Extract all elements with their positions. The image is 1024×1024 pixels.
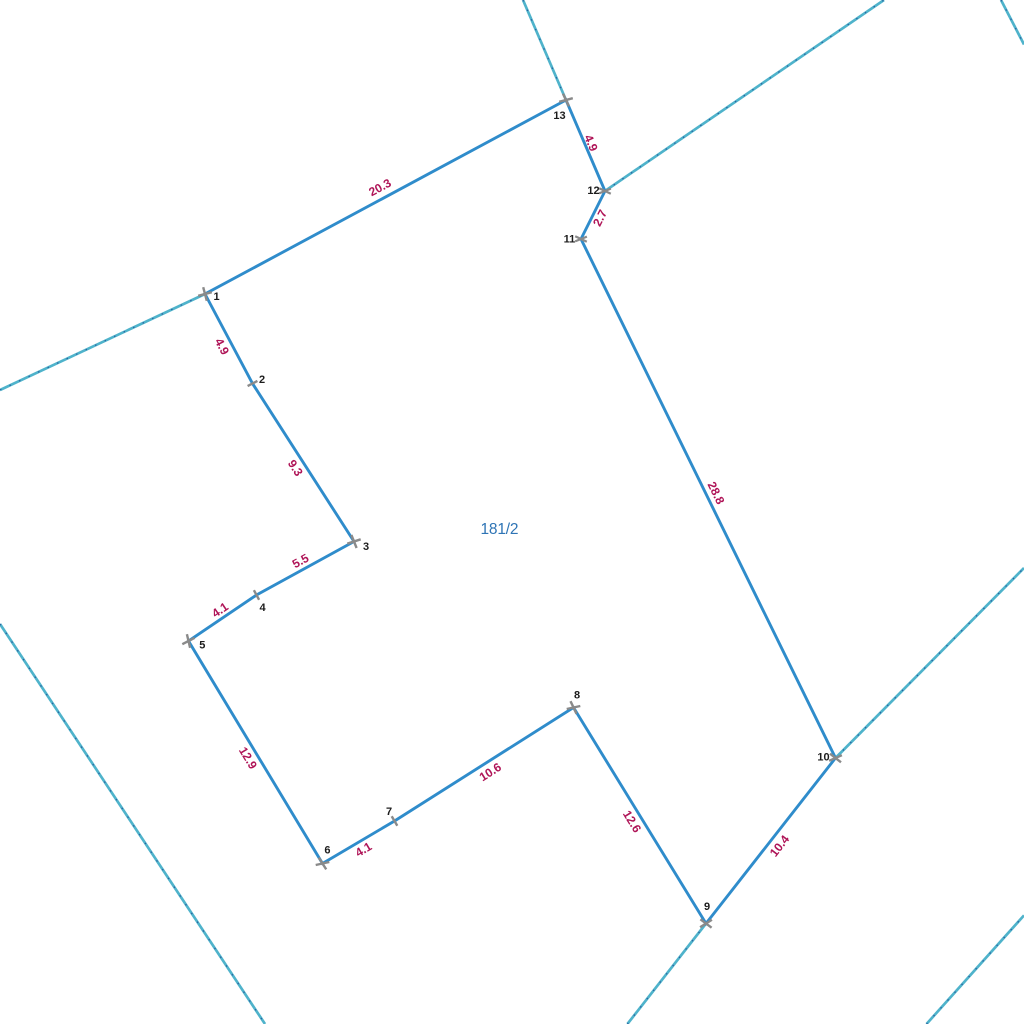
svg-text:181/2: 181/2 [481,521,519,538]
svg-text:8: 8 [574,690,580,702]
svg-text:1: 1 [213,291,219,303]
svg-text:6: 6 [324,845,330,857]
svg-text:4: 4 [259,602,266,614]
svg-text:3: 3 [363,541,369,553]
svg-text:10: 10 [817,752,829,764]
svg-text:11: 11 [564,234,576,246]
svg-text:5: 5 [199,640,205,652]
svg-text:7: 7 [386,806,392,818]
svg-text:12: 12 [587,185,599,197]
svg-text:2: 2 [259,374,265,386]
svg-text:9: 9 [704,901,710,913]
svg-text:13: 13 [553,110,565,122]
